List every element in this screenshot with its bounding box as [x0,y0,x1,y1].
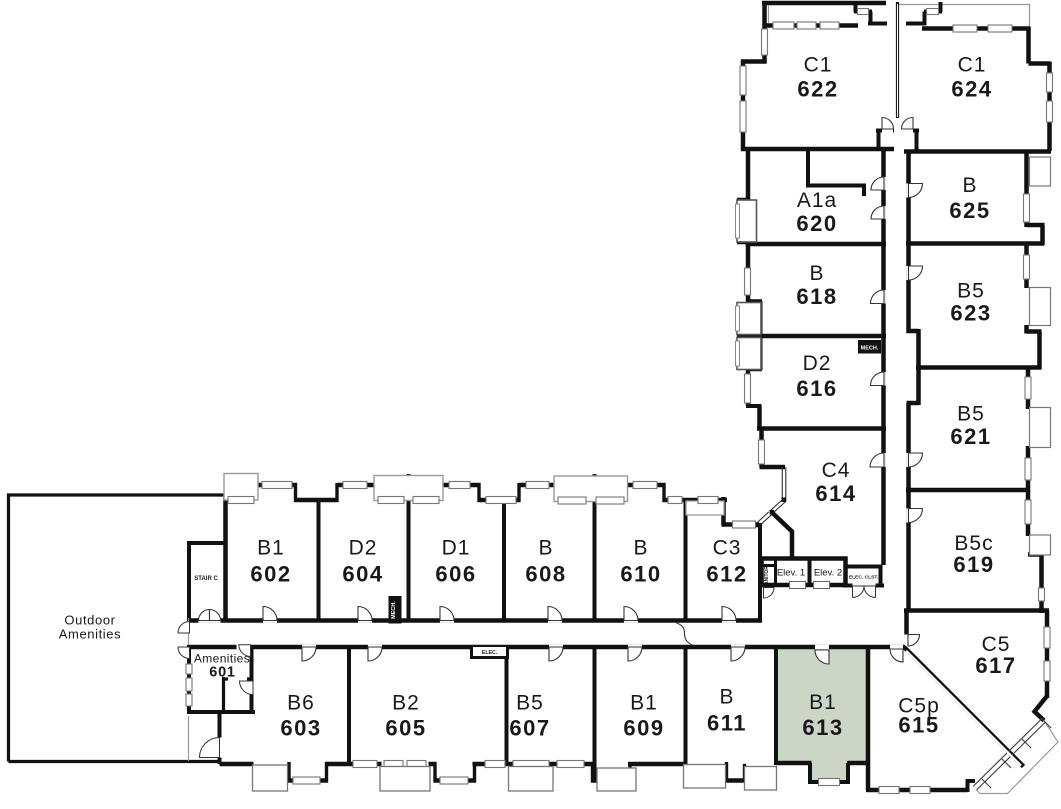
svg-text:B: B [809,262,824,285]
svg-text:B: B [538,537,553,560]
svg-text:607: 607 [509,716,550,741]
svg-text:622: 622 [797,77,838,102]
svg-text:B: B [962,174,977,197]
svg-text:A1a: A1a [797,189,837,212]
svg-text:617: 617 [975,653,1016,678]
svg-text:625: 625 [949,198,990,223]
svg-text:614: 614 [815,481,856,506]
svg-text:B1: B1 [630,692,658,715]
svg-text:Outdoor: Outdoor [64,613,115,628]
svg-text:610: 610 [620,562,661,587]
svg-text:Amenities: Amenities [59,627,121,642]
svg-text:B5: B5 [516,692,544,715]
svg-text:D2: D2 [803,352,832,375]
svg-text:608: 608 [525,562,566,587]
svg-text:618: 618 [796,284,837,309]
svg-text:602: 602 [250,562,291,587]
svg-text:ELEC.: ELEC. [482,650,498,656]
svg-text:605: 605 [385,716,426,741]
svg-text:613: 613 [802,715,843,740]
svg-text:601: 601 [209,665,236,681]
svg-text:B5: B5 [957,280,985,303]
svg-text:MECH.: MECH. [861,346,879,352]
svg-text:ELEC. CLST.: ELEC. CLST. [849,575,879,581]
svg-text:B5: B5 [957,403,985,426]
svg-text:B: B [633,537,648,560]
svg-text:C1: C1 [958,54,987,77]
svg-text:JANITOR: JANITOR [764,566,770,588]
svg-text:Elev. 1: Elev. 1 [777,568,805,579]
svg-text:621: 621 [950,424,991,449]
svg-text:Amenities: Amenities [194,652,250,666]
svg-text:623: 623 [950,301,991,326]
svg-text:612: 612 [706,562,747,587]
svg-text:606: 606 [435,562,476,587]
svg-text:B1: B1 [809,691,837,714]
svg-text:C1: C1 [804,54,833,77]
svg-text:Elev. 2: Elev. 2 [814,568,842,579]
svg-text:611: 611 [707,711,747,736]
svg-text:604: 604 [342,562,383,587]
svg-text:624: 624 [951,77,992,102]
svg-text:D1: D1 [442,537,471,560]
svg-text:615: 615 [898,713,939,738]
svg-text:603: 603 [280,716,321,741]
svg-text:STAIR C: STAIR C [194,576,218,582]
svg-text:616: 616 [796,376,837,401]
svg-text:C4: C4 [822,459,851,482]
svg-text:D2: D2 [349,537,378,560]
svg-text:620: 620 [796,211,837,236]
svg-text:B1: B1 [257,537,285,560]
svg-text:C3: C3 [713,537,742,560]
svg-text:619: 619 [953,552,994,577]
svg-text:609: 609 [623,716,664,741]
svg-text:B: B [719,686,734,709]
svg-text:B6: B6 [287,692,315,715]
svg-text:MECH.: MECH. [391,601,397,619]
svg-text:B2: B2 [392,692,420,715]
